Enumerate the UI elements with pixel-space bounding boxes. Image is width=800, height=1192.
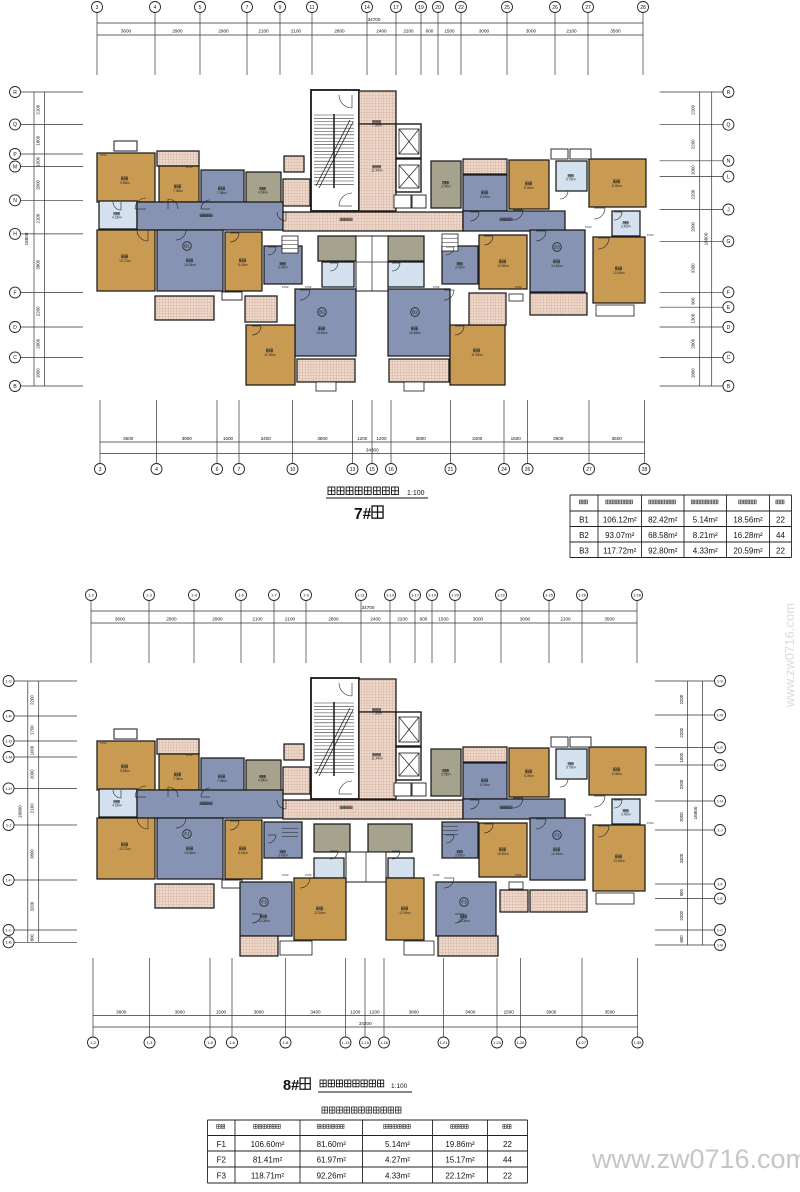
- svg-text:2100: 2100: [36, 213, 41, 223]
- svg-text:1-26: 1-26: [578, 592, 587, 597]
- svg-text:2200: 2200: [679, 910, 684, 920]
- svg-text:K702: K702: [515, 285, 522, 289]
- svg-text:1-E: 1-E: [717, 896, 724, 901]
- svg-text:900: 900: [691, 297, 696, 305]
- svg-text:K702: K702: [282, 873, 289, 877]
- svg-text:R: R: [727, 90, 731, 96]
- svg-text:1-16: 1-16: [380, 1040, 389, 1045]
- svg-text:1800: 1800: [36, 368, 41, 378]
- svg-text:15.48m²: 15.48m²: [409, 331, 421, 335]
- svg-text:15.17m²: 15.17m²: [445, 1156, 475, 1165]
- svg-text:1-Q: 1-Q: [5, 738, 12, 743]
- svg-text:3900: 3900: [182, 436, 193, 441]
- svg-text:81.60m²: 81.60m²: [317, 1140, 347, 1149]
- svg-text:16800: 16800: [693, 806, 698, 819]
- svg-text:20.59m²: 20.59m²: [733, 547, 763, 556]
- svg-text:1200: 1200: [376, 436, 387, 441]
- svg-text:22: 22: [776, 547, 785, 556]
- svg-text:1700: 1700: [30, 725, 35, 735]
- svg-text:2000: 2000: [30, 769, 35, 779]
- svg-text:F3: F3: [217, 1172, 227, 1181]
- svg-text:2800: 2800: [334, 29, 345, 34]
- svg-text:2200: 2200: [397, 617, 408, 622]
- svg-text:B3: B3: [579, 547, 589, 556]
- svg-text:19: 19: [418, 5, 424, 11]
- svg-text:www.zw0716.com: www.zw0716.com: [591, 1144, 800, 1174]
- svg-text:1000: 1000: [691, 165, 696, 175]
- svg-text:1200: 1200: [369, 1010, 380, 1015]
- svg-text:1500: 1500: [223, 436, 234, 441]
- svg-text:8.43m²: 8.43m²: [238, 851, 248, 855]
- svg-text:B2: B2: [319, 310, 325, 315]
- svg-text:1-J: 1-J: [717, 827, 723, 832]
- svg-text:1-F: 1-F: [6, 877, 13, 882]
- svg-text:5: 5: [199, 5, 202, 11]
- svg-text:1500: 1500: [504, 1010, 515, 1015]
- svg-text:2100: 2100: [30, 803, 35, 813]
- svg-text:1500: 1500: [511, 436, 522, 441]
- svg-text:3800: 3800: [416, 436, 427, 441]
- svg-text:1-13: 1-13: [341, 1040, 350, 1045]
- svg-text:K702: K702: [647, 233, 654, 237]
- svg-text:1800: 1800: [691, 368, 696, 378]
- svg-text:7.08m²: 7.08m²: [173, 777, 183, 781]
- svg-text:800: 800: [30, 933, 35, 941]
- svg-text:7.30m²: 7.30m²: [372, 123, 382, 127]
- svg-text:68.58m²: 68.58m²: [648, 531, 678, 540]
- svg-text:3200: 3200: [30, 901, 35, 911]
- svg-text:3500: 3500: [604, 617, 615, 622]
- svg-text:1-M: 1-M: [717, 762, 724, 767]
- svg-text:2000: 2000: [36, 338, 41, 348]
- svg-text:Q: Q: [13, 122, 17, 128]
- svg-text:3000: 3000: [526, 29, 537, 34]
- svg-text:1000: 1000: [30, 745, 35, 755]
- svg-text:5.14m²: 5.14m²: [693, 516, 718, 525]
- svg-text:15: 15: [369, 467, 375, 473]
- svg-text:R: R: [13, 90, 17, 96]
- svg-text:1-C: 1-C: [717, 927, 724, 932]
- svg-text:18800: 18800: [704, 232, 709, 245]
- svg-text:5.79m²: 5.79m²: [566, 765, 576, 769]
- svg-text:7#: 7#: [354, 506, 372, 523]
- svg-text:1-26: 1-26: [516, 1040, 525, 1045]
- svg-text:3900: 3900: [553, 436, 564, 441]
- svg-text:L: L: [727, 174, 730, 180]
- svg-text:14.06m²: 14.06m²: [184, 263, 196, 267]
- svg-text:3.42m²: 3.42m²: [621, 812, 631, 816]
- svg-text:17: 17: [393, 5, 399, 11]
- svg-text:7: 7: [238, 467, 241, 473]
- svg-text:B1: B1: [579, 516, 589, 525]
- svg-text:1-3: 1-3: [146, 592, 153, 597]
- svg-text:3400: 3400: [472, 436, 483, 441]
- svg-text:2000: 2000: [691, 338, 696, 348]
- svg-text:13.08m²: 13.08m²: [458, 919, 470, 923]
- svg-text:3.78m²: 3.78m²: [441, 185, 451, 189]
- svg-text:1-19: 1-19: [428, 592, 437, 597]
- svg-text:1200: 1200: [357, 436, 368, 441]
- svg-text:13.08m²: 13.08m²: [258, 919, 270, 923]
- svg-text:28: 28: [640, 5, 646, 11]
- svg-text:F: F: [13, 290, 16, 296]
- svg-text:1500: 1500: [216, 1010, 227, 1015]
- svg-text:26: 26: [525, 467, 531, 473]
- svg-text:N: N: [727, 159, 731, 165]
- svg-text:1200: 1200: [350, 1010, 361, 1015]
- svg-text:F2: F2: [217, 1156, 227, 1165]
- svg-text:3600: 3600: [116, 1010, 127, 1015]
- svg-text:1-28: 1-28: [633, 592, 642, 597]
- svg-text:1-S: 1-S: [717, 678, 724, 683]
- svg-text:10.90m²: 10.90m²: [497, 264, 509, 268]
- svg-text:27: 27: [585, 5, 591, 11]
- svg-text:K702: K702: [100, 153, 107, 157]
- svg-text:11.44m²: 11.44m²: [371, 756, 382, 760]
- svg-text:15.48m²: 15.48m²: [316, 331, 328, 335]
- svg-text:4.27m²: 4.27m²: [385, 1156, 410, 1165]
- svg-text:F3: F3: [461, 900, 467, 905]
- svg-text:4.18m²: 4.18m²: [112, 804, 122, 808]
- svg-text:3500: 3500: [612, 436, 623, 441]
- svg-text:44: 44: [776, 531, 785, 540]
- svg-text:1300: 1300: [691, 313, 696, 323]
- svg-text:3800: 3800: [36, 259, 41, 269]
- svg-text:3.43m²: 3.43m²: [278, 265, 288, 269]
- svg-text:1-17: 1-17: [411, 592, 420, 597]
- svg-text:22: 22: [776, 516, 785, 525]
- svg-text:16800: 16800: [18, 805, 23, 818]
- svg-text:K702: K702: [585, 225, 592, 229]
- svg-text:2900: 2900: [212, 617, 223, 622]
- svg-text:3500: 3500: [605, 1010, 616, 1015]
- svg-text:3: 3: [99, 467, 102, 473]
- svg-text:34200: 34200: [359, 1021, 372, 1026]
- svg-text:F2: F2: [554, 833, 560, 838]
- svg-text:1-24: 1-24: [493, 1040, 502, 1045]
- svg-text:22: 22: [503, 1140, 512, 1149]
- svg-text:K702: K702: [585, 813, 592, 817]
- svg-text:2000: 2000: [691, 221, 696, 231]
- svg-text:2200: 2200: [36, 306, 41, 316]
- svg-text:106.60m²: 106.60m²: [251, 1140, 285, 1149]
- svg-text:F1: F1: [184, 832, 190, 837]
- svg-text:1-4: 1-4: [191, 592, 198, 597]
- svg-text:B1: B1: [184, 244, 190, 249]
- svg-text:106.12m²: 106.12m²: [603, 516, 637, 525]
- svg-text:7.08m²: 7.08m²: [173, 189, 183, 193]
- svg-text:7: 7: [246, 5, 249, 11]
- svg-text:34300: 34300: [366, 448, 379, 453]
- svg-text:4: 4: [155, 467, 158, 473]
- svg-text:3800: 3800: [254, 1010, 265, 1015]
- svg-text:11.95m²: 11.95m²: [471, 353, 482, 357]
- svg-text:1-C: 1-C: [5, 927, 12, 932]
- svg-text:1-2: 1-2: [88, 592, 95, 597]
- svg-text:3.43m²: 3.43m²: [278, 853, 288, 857]
- svg-text:8.00m²: 8.00m²: [612, 184, 622, 188]
- svg-text:K702: K702: [515, 873, 522, 877]
- svg-text:G: G: [726, 239, 730, 245]
- svg-text:3600: 3600: [121, 29, 132, 34]
- svg-text:1-5: 1-5: [207, 1040, 214, 1045]
- svg-text:K702: K702: [282, 285, 289, 289]
- svg-text:14: 14: [364, 5, 370, 11]
- svg-text:3.43m²: 3.43m²: [455, 265, 465, 269]
- svg-text:2100: 2100: [291, 29, 302, 34]
- svg-text:9.83m²: 9.83m²: [120, 181, 130, 185]
- svg-text:22: 22: [458, 5, 464, 11]
- svg-text:9.83m²: 9.83m²: [120, 769, 130, 773]
- svg-text:1-9: 1-9: [303, 592, 310, 597]
- svg-text:1:100: 1:100: [391, 1083, 408, 1090]
- svg-text:8.00m²: 8.00m²: [612, 772, 622, 776]
- svg-text:3400: 3400: [465, 1010, 476, 1015]
- svg-text:92.80m²: 92.80m²: [648, 547, 678, 556]
- svg-text:1500: 1500: [438, 617, 449, 622]
- svg-text:5.14m²: 5.14m²: [385, 1140, 410, 1149]
- svg-text:1-H: 1-H: [5, 786, 12, 791]
- svg-text:1-R: 1-R: [717, 712, 724, 717]
- svg-text:44: 44: [503, 1156, 512, 1165]
- svg-text:22: 22: [503, 1172, 512, 1181]
- svg-text:2900: 2900: [218, 29, 229, 34]
- svg-text:3800: 3800: [317, 436, 328, 441]
- svg-text:8.19m²: 8.19m²: [480, 783, 490, 787]
- svg-text:10: 10: [290, 467, 296, 473]
- svg-text:3500: 3500: [610, 29, 621, 34]
- svg-text:11.44m²: 11.44m²: [371, 168, 382, 172]
- svg-text:1-6: 1-6: [238, 592, 245, 597]
- svg-text:3000: 3000: [479, 29, 490, 34]
- svg-text:16: 16: [388, 467, 394, 473]
- svg-text:3.78m²: 3.78m²: [441, 773, 451, 777]
- svg-text:M: M: [13, 164, 17, 170]
- svg-text:14.46m²: 14.46m²: [551, 852, 563, 856]
- svg-text:13.72m²: 13.72m²: [119, 847, 131, 851]
- svg-text:1-J: 1-J: [6, 822, 12, 827]
- svg-text:B2: B2: [412, 310, 418, 315]
- svg-text:2200: 2200: [691, 139, 696, 149]
- svg-text:93.07m²: 93.07m²: [605, 531, 635, 540]
- svg-text:C: C: [727, 355, 731, 361]
- svg-text:2200: 2200: [679, 779, 684, 789]
- svg-text:8.00m²: 8.00m²: [524, 774, 534, 778]
- svg-text:25: 25: [504, 5, 510, 11]
- svg-text:1-20: 1-20: [451, 592, 460, 597]
- svg-text:4.64m²: 4.64m²: [258, 191, 268, 195]
- svg-text:28: 28: [642, 467, 648, 473]
- svg-text:900: 900: [679, 889, 684, 897]
- svg-text:2900: 2900: [172, 29, 183, 34]
- svg-text:D: D: [727, 325, 731, 331]
- svg-text:3.43m²: 3.43m²: [455, 853, 465, 857]
- svg-text:1-P: 1-P: [717, 745, 724, 750]
- svg-text:3300: 3300: [679, 853, 684, 863]
- svg-text:3600: 3600: [123, 436, 134, 441]
- svg-text:22.12m²: 22.12m²: [445, 1172, 475, 1181]
- svg-text:K702: K702: [100, 741, 107, 745]
- svg-text:2100: 2100: [560, 617, 571, 622]
- svg-text:4: 4: [154, 5, 157, 11]
- svg-text:34700: 34700: [362, 605, 375, 610]
- svg-text:3800: 3800: [409, 1010, 420, 1015]
- svg-text:C: C: [13, 355, 17, 361]
- svg-text:F: F: [727, 290, 730, 296]
- svg-text:B3: B3: [554, 245, 560, 250]
- svg-text:11.95m²: 11.95m²: [264, 353, 275, 357]
- svg-text:24: 24: [501, 467, 507, 473]
- svg-text:4.33m²: 4.33m²: [693, 547, 718, 556]
- svg-text:K702: K702: [305, 285, 312, 289]
- svg-text:61.97m²: 61.97m²: [317, 1156, 347, 1165]
- svg-text:1-S: 1-S: [5, 678, 12, 683]
- svg-text:K702: K702: [433, 873, 440, 877]
- svg-text:2100: 2100: [566, 29, 577, 34]
- svg-text:2100: 2100: [36, 104, 41, 114]
- svg-text:4.18m²: 4.18m²: [112, 216, 122, 220]
- svg-text:6: 6: [216, 467, 219, 473]
- svg-text:3300: 3300: [691, 263, 696, 273]
- svg-text:N: N: [13, 198, 17, 204]
- svg-text:26: 26: [552, 5, 558, 11]
- svg-text:K702: K702: [433, 285, 440, 289]
- svg-text:F3: F3: [261, 900, 267, 905]
- svg-text:2800: 2800: [328, 617, 339, 622]
- svg-text:800: 800: [679, 935, 684, 943]
- svg-text:4.33m²: 4.33m²: [385, 1172, 410, 1181]
- svg-text:18800: 18800: [24, 232, 29, 245]
- svg-text:18.56m²: 18.56m²: [733, 516, 763, 525]
- svg-text:8.19m²: 8.19m²: [480, 195, 490, 199]
- svg-text:14.06m²: 14.06m²: [184, 851, 196, 855]
- svg-text:3800: 3800: [30, 849, 35, 859]
- svg-text:2200: 2200: [691, 189, 696, 199]
- svg-text:2900: 2900: [166, 617, 177, 622]
- svg-text:Q: Q: [726, 123, 730, 129]
- svg-text:12.94m²: 12.94m²: [314, 911, 326, 915]
- svg-text:19.86m²: 19.86m²: [445, 1140, 475, 1149]
- svg-text:2000: 2000: [36, 179, 41, 189]
- svg-text:H: H: [13, 232, 17, 238]
- svg-text:13.94m²: 13.94m²: [613, 859, 625, 863]
- svg-text:82.42m²: 82.42m²: [648, 516, 678, 525]
- svg-text:1500: 1500: [444, 29, 455, 34]
- svg-text:2100: 2100: [285, 617, 296, 622]
- svg-text:1-11: 1-11: [357, 592, 365, 597]
- svg-text:1-F: 1-F: [717, 881, 724, 886]
- svg-text:B2: B2: [579, 531, 589, 540]
- svg-text:1-15: 1-15: [361, 1040, 370, 1045]
- svg-text:5.79m²: 5.79m²: [566, 177, 576, 181]
- svg-text:14.46m²: 14.46m²: [551, 264, 563, 268]
- svg-text:1-27: 1-27: [578, 1040, 587, 1045]
- svg-text:2100: 2100: [252, 617, 263, 622]
- svg-text:2200: 2200: [403, 29, 414, 34]
- svg-text:1-B: 1-B: [5, 940, 12, 945]
- svg-text:7.30m²: 7.30m²: [372, 711, 382, 715]
- svg-text:8#: 8#: [283, 1078, 299, 1094]
- svg-text:F1: F1: [217, 1140, 227, 1149]
- svg-text:1-R: 1-R: [5, 713, 12, 718]
- svg-text:21: 21: [448, 467, 454, 473]
- svg-text:1-H: 1-H: [717, 798, 724, 803]
- svg-text:13.72m²: 13.72m²: [119, 259, 131, 263]
- svg-text:1-14: 1-14: [386, 592, 395, 597]
- svg-text:3.42m²: 3.42m²: [621, 224, 631, 228]
- svg-text:11: 11: [309, 5, 314, 11]
- svg-text:3400: 3400: [310, 1010, 321, 1015]
- svg-text:118.71m²: 118.71m²: [251, 1172, 285, 1181]
- svg-text:13.94m²: 13.94m²: [613, 271, 625, 275]
- svg-text:4.64m²: 4.64m²: [258, 779, 268, 783]
- svg-text:20: 20: [435, 5, 441, 11]
- svg-text:117.72m²: 117.72m²: [603, 547, 637, 556]
- svg-text:3000: 3000: [473, 617, 484, 622]
- svg-text:12.94m²: 12.94m²: [399, 911, 411, 915]
- svg-text:92.26m²: 92.26m²: [317, 1172, 347, 1181]
- svg-text:2100: 2100: [258, 29, 269, 34]
- svg-text:1-6: 1-6: [229, 1040, 236, 1045]
- svg-text:3900: 3900: [175, 1010, 186, 1015]
- svg-text:2200: 2200: [30, 695, 35, 705]
- svg-text:27: 27: [586, 467, 592, 473]
- svg-text:81.41m²: 81.41m²: [253, 1156, 283, 1165]
- svg-text:600: 600: [420, 617, 428, 622]
- svg-text:1-35: 1-35: [633, 1040, 642, 1045]
- svg-text:8.21m²: 8.21m²: [693, 531, 718, 540]
- svg-text:7.08m²: 7.08m²: [217, 779, 227, 783]
- svg-text:1-2: 1-2: [90, 1040, 97, 1045]
- svg-text:2400: 2400: [376, 29, 387, 34]
- svg-text:1-B: 1-B: [717, 942, 724, 947]
- svg-text:13: 13: [350, 467, 356, 473]
- svg-text:9: 9: [279, 5, 282, 11]
- svg-text:1-21: 1-21: [439, 1040, 448, 1045]
- svg-text:16.28m²: 16.28m²: [733, 531, 763, 540]
- svg-text:600: 600: [426, 29, 434, 34]
- svg-text:2100: 2100: [691, 104, 696, 114]
- svg-text:1-7: 1-7: [271, 592, 278, 597]
- svg-text:34700: 34700: [368, 17, 381, 22]
- svg-text:K702: K702: [647, 821, 654, 825]
- svg-text:10.90m²: 10.90m²: [497, 852, 509, 856]
- svg-text:3600: 3600: [115, 617, 126, 622]
- svg-text:7.08m²: 7.08m²: [217, 191, 227, 195]
- svg-text:1-8: 1-8: [283, 1040, 290, 1045]
- svg-text:2200: 2200: [679, 727, 684, 737]
- svg-text:1-22: 1-22: [497, 592, 506, 597]
- svg-text:K702: K702: [186, 753, 193, 757]
- svg-text:1800: 1800: [36, 135, 41, 145]
- svg-text:3: 3: [96, 5, 99, 11]
- svg-text:1-25: 1-25: [545, 592, 554, 597]
- svg-text:8.00m²: 8.00m²: [524, 186, 534, 190]
- svg-text:3900: 3900: [546, 1010, 557, 1015]
- svg-text:K702: K702: [305, 873, 312, 877]
- svg-text:8.43m²: 8.43m²: [238, 263, 248, 267]
- svg-text:1000: 1000: [679, 752, 684, 762]
- svg-text:1-M: 1-M: [5, 754, 12, 759]
- svg-text:2000: 2000: [679, 812, 684, 822]
- svg-text:2400: 2400: [370, 617, 381, 622]
- svg-text:2200: 2200: [679, 694, 684, 704]
- svg-text:3000: 3000: [520, 617, 531, 622]
- svg-text:D: D: [13, 325, 17, 331]
- svg-text:1:100: 1:100: [407, 490, 425, 497]
- svg-text:1-3: 1-3: [147, 1040, 154, 1045]
- svg-text:www.zw0716.com: www.zw0716.com: [782, 603, 797, 708]
